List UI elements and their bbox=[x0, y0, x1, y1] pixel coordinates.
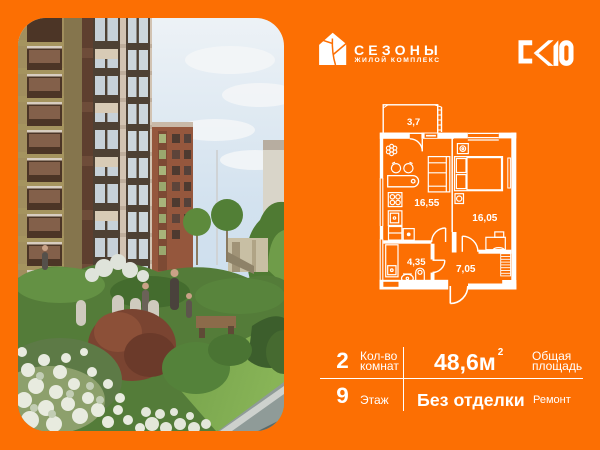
svg-text:16,55: 16,55 bbox=[414, 198, 439, 209]
svg-text:3,7: 3,7 bbox=[407, 117, 420, 128]
svg-text:7,05: 7,05 bbox=[456, 264, 476, 275]
svg-text:16,05: 16,05 bbox=[472, 213, 497, 224]
svg-text:4,35: 4,35 bbox=[407, 257, 426, 268]
